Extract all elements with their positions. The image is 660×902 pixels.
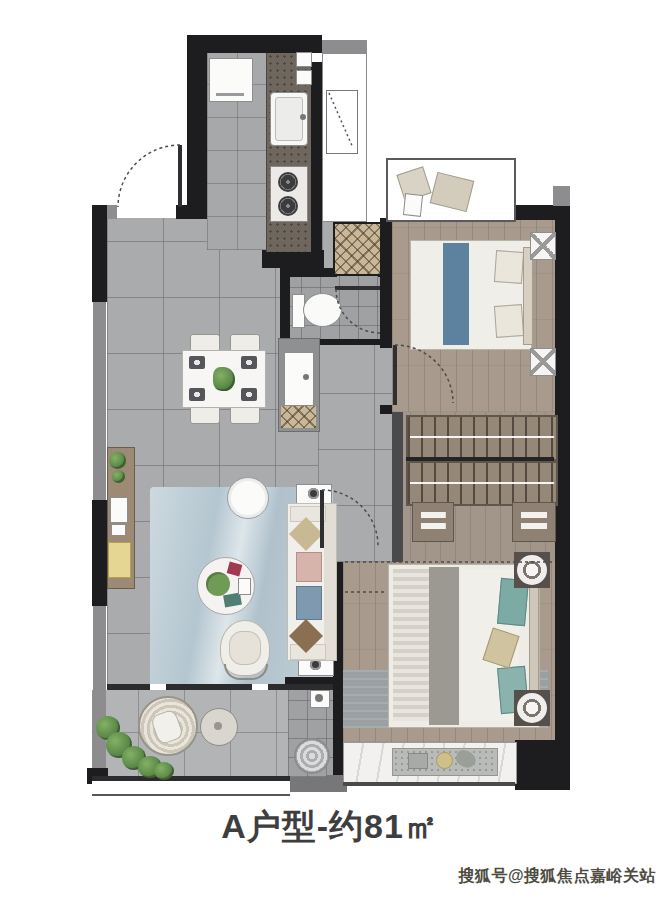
sliding-door-gap — [252, 684, 268, 690]
closet-drawer-cabinet — [512, 502, 556, 542]
bay-book — [403, 193, 423, 217]
closet-rail — [410, 482, 554, 484]
notebook-decor — [238, 578, 251, 595]
flue-window — [326, 90, 358, 154]
wall-closet-left — [392, 412, 403, 562]
bed-pillow — [494, 250, 524, 284]
table-centerpiece — [213, 367, 235, 391]
console-decor — [111, 524, 126, 536]
bed-headboard — [523, 247, 533, 345]
watermark: 搜狐号@搜狐焦点嘉峪关站 — [458, 866, 656, 887]
floor-plan-image: A户型-约81㎡ 搜狐号@搜狐焦点嘉峪关站 — [0, 0, 660, 902]
side-table-round — [227, 477, 269, 519]
bed-runner-blue — [443, 243, 469, 345]
bed-pillow — [494, 304, 524, 338]
sliding-door-gap — [150, 684, 166, 690]
console-decor — [110, 497, 128, 523]
coffee-table — [197, 557, 255, 615]
round-nightstand — [517, 555, 547, 585]
red-decor — [227, 562, 243, 577]
entry-door-leaf — [178, 145, 182, 207]
place-setting-icon — [189, 356, 205, 369]
entry-door-swing-arc — [118, 145, 180, 207]
closet-drawer-cabinet — [412, 502, 454, 542]
wall-right-grey-cap — [553, 186, 570, 206]
place-setting-icon — [189, 388, 205, 401]
master-door-leaf — [320, 490, 324, 548]
wall-top-grey-cap — [322, 40, 367, 53]
veggie-plate — [206, 572, 230, 596]
wall-entry-jamb-right — [176, 205, 207, 219]
console-plant — [112, 470, 125, 483]
yellow-stool — [108, 542, 131, 578]
bathroom-door-leaf — [335, 286, 380, 290]
vanity-basin — [284, 352, 314, 406]
place-setting-icon — [241, 388, 257, 401]
bed-runner-grey — [429, 567, 459, 725]
closet-hanging-rack — [406, 461, 558, 506]
stove-burner-icon — [278, 196, 298, 216]
bay-decor-book — [408, 753, 428, 769]
wall-counter-right — [310, 62, 322, 250]
wall-bathroom-top-a — [280, 268, 337, 277]
plan-title: A户型-约81㎡ — [0, 804, 660, 850]
console-plant — [109, 452, 126, 469]
floor-drain — [294, 738, 330, 774]
nightstand — [530, 348, 556, 376]
sofa-pillow-pink — [296, 552, 322, 582]
wall-counter-cap — [262, 250, 324, 268]
end-table-decor-icon — [308, 488, 319, 499]
entry-mat — [281, 406, 316, 428]
wall-kitchen-left — [187, 35, 207, 217]
closet-hanging-rack — [406, 415, 558, 461]
wall-bay-right-corner — [515, 740, 570, 790]
balcony-window-sill — [92, 781, 290, 796]
refrigerator-handle — [216, 93, 244, 96]
wall-bathroom-left — [280, 268, 290, 346]
meter-box-icon — [296, 70, 312, 85]
master-bay-outer-line — [343, 782, 515, 786]
round-nightstand — [517, 693, 547, 723]
water-tap-icon — [315, 694, 323, 702]
window-left-balcony — [93, 606, 106, 768]
bedroom2-door-leaf — [393, 345, 397, 405]
kitchen-faucet-icon — [300, 114, 306, 120]
armchair-cushion — [229, 631, 261, 665]
wall-kitchen-top — [187, 35, 322, 53]
wall-left-upper — [92, 205, 107, 302]
balcony-sliding-door-track — [107, 684, 333, 690]
nightstand — [530, 232, 556, 260]
table-center-dot — [214, 722, 222, 730]
stove-burner-icon — [278, 172, 298, 192]
balcony-plant — [154, 762, 174, 780]
meter-box-icon — [296, 52, 312, 67]
sofa-pillow-tan — [289, 517, 323, 551]
place-setting-icon — [241, 356, 257, 369]
wall-bedroom2-left-stub — [380, 405, 392, 414]
vanity-faucet-icon — [303, 374, 309, 380]
sofa — [287, 503, 337, 661]
toilet-bowl — [303, 293, 342, 327]
bay-decor-bowl — [436, 752, 453, 769]
window-left-living — [93, 302, 106, 500]
kitchen-sink-basin — [275, 97, 303, 141]
sofa-back — [324, 504, 336, 660]
shaft-box — [333, 222, 382, 276]
dining-table — [182, 350, 266, 408]
bedroom2-bed — [410, 240, 532, 350]
wall-left-mid — [92, 500, 107, 606]
sofa-pillow-blue — [296, 586, 322, 620]
closet-rail — [410, 436, 554, 438]
